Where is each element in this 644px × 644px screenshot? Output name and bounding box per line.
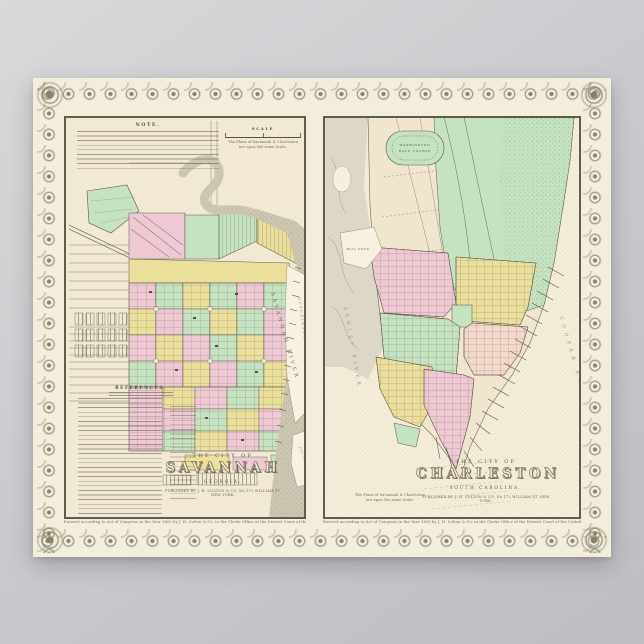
vine-border-top [37, 82, 607, 106]
vine-corner-bottom-left [35, 525, 65, 555]
charleston-scale-note-2: are upon the same Scale. [344, 498, 436, 503]
charleston-map-drawing: WASHINGTON RACE COURSE [324, 117, 580, 518]
charleston-race-course: WASHINGTON RACE COURSE [386, 131, 444, 165]
charleston-copyright-caption: Entered according to Act of Congress in … [323, 520, 581, 526]
charleston-title: CHARLESTON [416, 466, 556, 482]
savannah-references-subtitle-lines [109, 392, 173, 396]
savannah-yellow-band [129, 259, 293, 283]
charleston-scale-note: The Plans of Savannah & Charleston are u… [344, 493, 436, 502]
savannah-checkerboard-wards [129, 283, 291, 387]
savannah-references-title: REFERENCES. [78, 385, 204, 390]
race-course-label-1: WASHINGTON [399, 143, 430, 147]
savannah-scale-caption-1: The Plans of Savannah & Charleston [223, 140, 303, 145]
savannah-region: GEORGIA. [161, 479, 285, 484]
antique-map-poster: SAVANNAH RIVER HUTCHINSON ISLAND FIG ISL… [33, 78, 611, 557]
vine-corner-bottom-right [579, 525, 609, 555]
savannah-west-lots [75, 313, 127, 357]
savannah-note-text-lines [77, 131, 219, 171]
scene-background: SAVANNAH RIVER HUTCHINSON ISLAND FIG ISL… [0, 0, 644, 644]
charleston-publisher: PUBLISHED BY J. H. COLTON & CO. No.172 W… [416, 495, 556, 503]
savannah-references-names [78, 398, 162, 514]
savannah-scale-bar [225, 133, 301, 138]
mill-pond-label: MILL POND [347, 247, 370, 251]
vine-border-bottom [37, 529, 607, 553]
charleston-title-block: THE CITY OF CHARLESTON SOUTH CAROLINA. P… [416, 459, 556, 503]
race-course-label-2: RACE COURSE [399, 149, 431, 153]
savannah-copyright-caption: Entered according to Act of Congress in … [64, 520, 306, 526]
savannah-scale-caption-2: are upon the same Scale. [223, 145, 303, 150]
savannah-title: SAVANNAH [161, 460, 285, 476]
savannah-note-block: NOTE. [73, 123, 223, 171]
charleston-map-panel: WASHINGTON RACE COURSE [323, 116, 581, 519]
savannah-note-title: NOTE. [73, 123, 223, 128]
charleston-region: SOUTH CAROLINA. [416, 485, 556, 490]
savannah-scale-block: SCALE The Plans of Savannah & Charleston… [223, 126, 303, 149]
savannah-scale-title: SCALE [223, 126, 303, 131]
vine-border-right [583, 82, 607, 553]
savannah-title-prefix: THE CITY OF [161, 453, 285, 459]
savannah-publisher: PUBLISHED BY J. H. COLTON & CO. No.172 W… [161, 489, 285, 497]
charleston-title-prefix: THE CITY OF [416, 459, 556, 465]
charleston-scale-note-1: The Plans of Savannah & Charleston [344, 493, 436, 498]
vine-corner-top-left [35, 80, 65, 110]
vine-corner-top-right [579, 80, 609, 110]
savannah-title-block: THE CITY OF SAVANNAH GEORGIA. PUBLISHED … [161, 453, 285, 497]
savannah-map-panel: SAVANNAH RIVER HUTCHINSON ISLAND FIG ISL… [64, 116, 306, 519]
vine-border-left [37, 82, 61, 553]
